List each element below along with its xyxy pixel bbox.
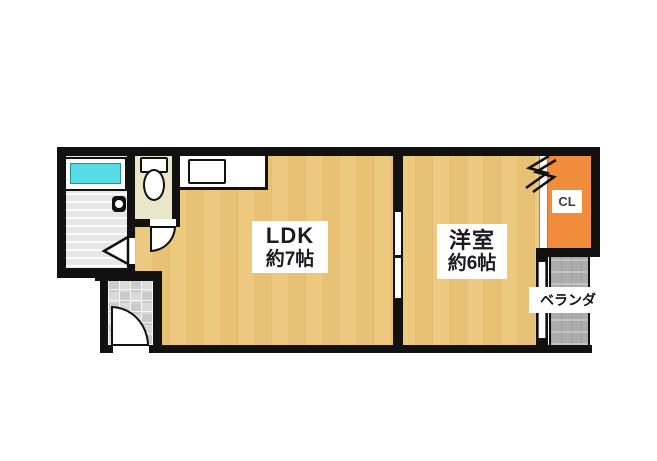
wall-toilet-right [172, 147, 180, 227]
bathtub-icon [64, 157, 127, 191]
ldk-size: 約7帖 [266, 249, 315, 271]
wall-closet-bottom [536, 248, 600, 257]
bedroom-name: 洋室 [449, 228, 495, 253]
veranda-label: ベランダ [529, 287, 607, 313]
floorplan: LDK 約7帖 洋室 約6帖 CL ベランダ [0, 0, 657, 461]
sliding-door-panel [394, 211, 402, 256]
veranda-label-text: ベランダ [540, 290, 596, 310]
ldk-name: LDK [266, 223, 314, 248]
bedroom-size: 約6帖 [448, 253, 497, 275]
entrance-door-opening [113, 346, 149, 353]
closet-label-text: CL [558, 194, 575, 209]
wall-bottom [100, 345, 592, 353]
ldk-label: LDK 約7帖 [252, 221, 328, 273]
bathroom-folding-door-icon [98, 233, 132, 269]
bathtub-water [70, 163, 121, 184]
shower-faucet-icon [112, 196, 126, 212]
kitchen-sink-icon [188, 159, 226, 184]
wall-entrance-left [100, 268, 108, 353]
bedroom-label: 洋室 約6帖 [437, 224, 507, 279]
wall-entrance-right [153, 271, 162, 353]
toilet-bowl-icon [143, 169, 165, 201]
sliding-door-panel [394, 257, 402, 299]
wall-right [591, 147, 600, 257]
closet-label: CL [552, 190, 582, 213]
